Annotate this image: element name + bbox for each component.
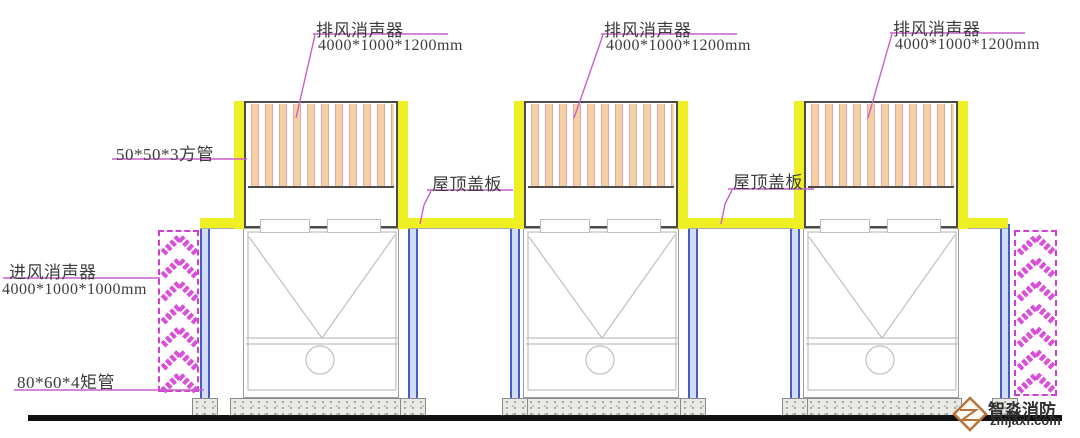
- silencer-slats: [248, 104, 394, 188]
- elevation-drawing: 排风消声器 4000*1000*1200mm 排风消声器 4000*1000*1…: [0, 0, 1080, 438]
- exhaust-silencer-box: [244, 101, 398, 228]
- fan-deck-rect-right: [607, 219, 661, 233]
- support-column-4: [688, 224, 698, 398]
- roof-cover-plate-segment-3: [688, 218, 794, 229]
- fan-deck-rect-right: [327, 219, 381, 233]
- tower-internals-drawing: [524, 229, 680, 399]
- exhaust-silencer-box: [524, 101, 678, 228]
- label-roof-cover-2: 屋顶盖板: [733, 168, 803, 193]
- roof-cover-plate-segment-1: [200, 218, 234, 229]
- tower-internals-drawing: [804, 229, 960, 399]
- label-intake-silencer-title: 进风消声器: [9, 258, 97, 283]
- label-intake-silencer-dims: 4000*1000*1000mm: [2, 281, 147, 299]
- exhaust-silencer-box: [804, 101, 958, 228]
- fan-deck-rect-left: [820, 219, 870, 233]
- support-column-5: [790, 224, 800, 398]
- support-column-6: [1000, 224, 1010, 398]
- label-exhaust-silencer-dims-3: 4000*1000*1200mm: [895, 36, 1040, 54]
- tower-body: [803, 228, 959, 398]
- fan-deck-rect-right: [887, 219, 941, 233]
- watermark: 智淼消防 zmjaxf.com: [952, 392, 1080, 436]
- ground-line: [28, 415, 1062, 421]
- tower-body: [523, 228, 679, 398]
- roof-cover-plate-segment-2: [408, 218, 514, 229]
- label-square-tube: 50*50*3方管: [116, 140, 214, 165]
- intake-silencer-panel-right: [1014, 230, 1057, 396]
- roof-plate-wrap-right: [678, 101, 688, 229]
- roof-plate-wrap-left: [794, 101, 804, 229]
- intake-silencer-hatch: [159, 231, 200, 393]
- roof-cover-plate-segment-4: [968, 218, 1008, 229]
- roof-plate-wrap-left: [234, 101, 244, 229]
- fan-deck-rect-left: [540, 219, 590, 233]
- fan-deck-rect-left: [260, 219, 310, 233]
- intake-silencer-hatch: [1015, 231, 1058, 397]
- silencer-slats: [528, 104, 674, 188]
- silencer-slats: [808, 104, 954, 188]
- roof-plate-wrap-left: [514, 101, 524, 229]
- tower-internals-drawing: [244, 229, 400, 399]
- intake-silencer-panel-left: [158, 230, 199, 392]
- support-column-3: [510, 224, 520, 398]
- label-exhaust-silencer-dims-2: 4000*1000*1200mm: [606, 37, 751, 55]
- roof-plate-wrap-right: [398, 101, 408, 229]
- label-roof-cover-1: 屋顶盖板: [432, 170, 502, 195]
- watermark-logo-icon: [952, 396, 988, 432]
- watermark-site: zmjaxf.com: [990, 413, 1061, 428]
- support-column-2: [408, 224, 418, 398]
- roof-plate-wrap-right: [958, 101, 968, 229]
- label-rect-tube: 80*60*4矩管: [17, 368, 115, 393]
- label-exhaust-silencer-dims-1: 4000*1000*1200mm: [318, 37, 463, 55]
- tower-body: [243, 228, 399, 398]
- support-column-1: [200, 224, 210, 398]
